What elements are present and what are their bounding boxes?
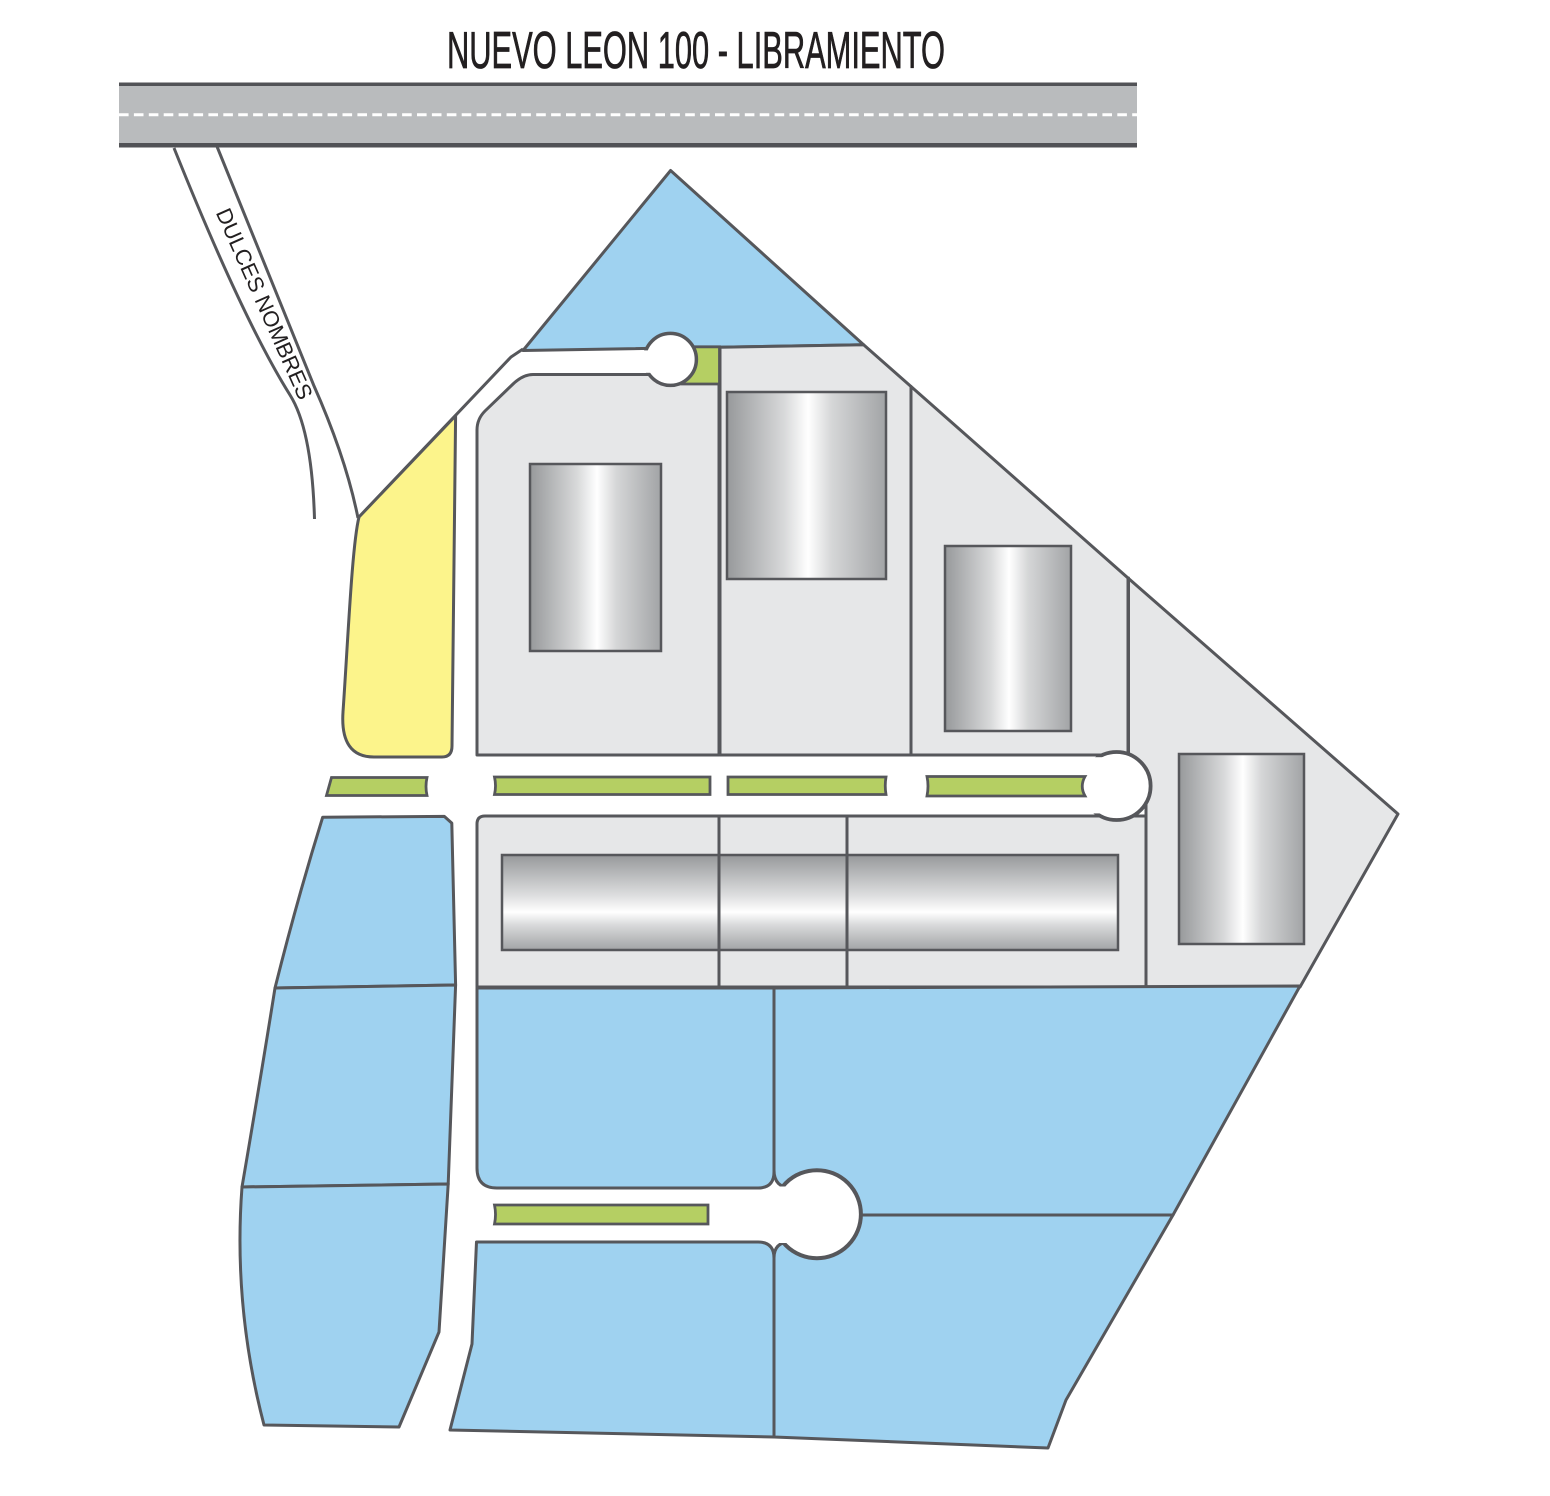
svg-text:NUEVO LEON 100 - LIBRAMIENTO: NUEVO LEON 100 - LIBRAMIENTO — [447, 21, 945, 79]
